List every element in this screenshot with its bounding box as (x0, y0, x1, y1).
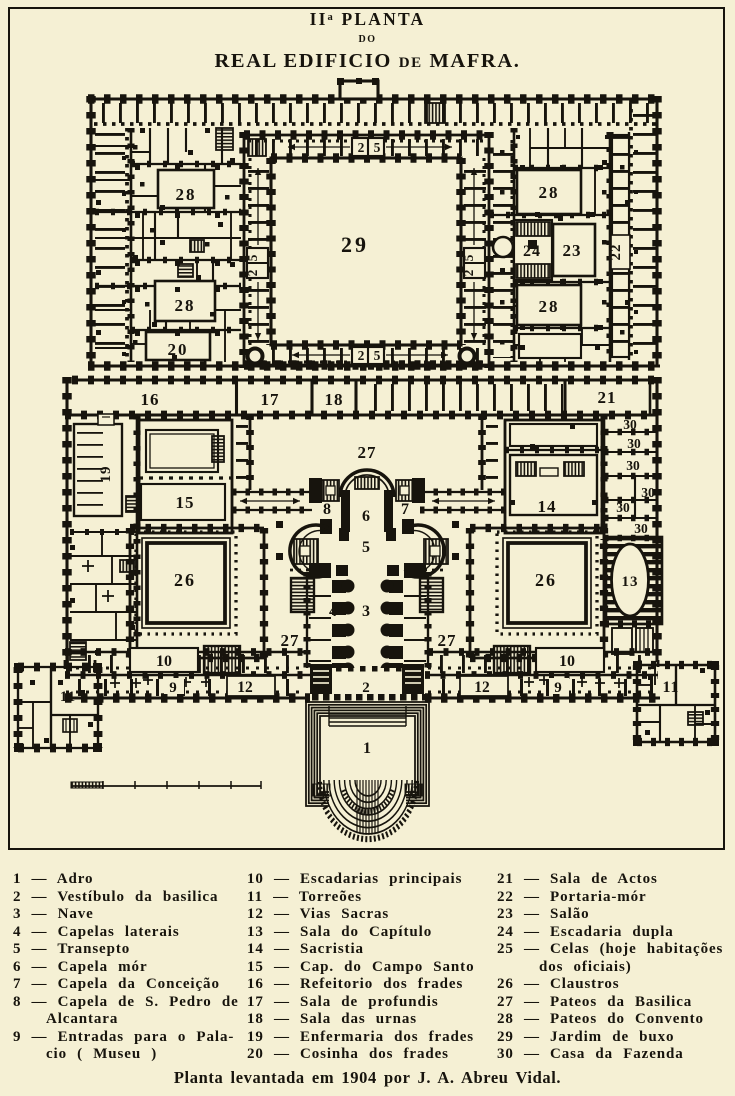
svg-text:30: 30 (623, 417, 637, 432)
svg-text:8: 8 (323, 501, 331, 518)
svg-text:1: 1 (363, 740, 371, 757)
svg-text:4: 4 (329, 603, 337, 620)
svg-text:5: 5 (374, 348, 381, 363)
svg-text:10: 10 (156, 653, 172, 670)
svg-text:27: 27 (358, 443, 377, 462)
svg-text:4: 4 (394, 602, 402, 619)
svg-text:23: 23 (563, 241, 582, 260)
svg-text:11: 11 (60, 689, 76, 705)
svg-text:24: 24 (523, 243, 541, 260)
svg-text:5: 5 (362, 539, 370, 556)
svg-text:30: 30 (626, 458, 640, 473)
svg-text:10: 10 (559, 653, 575, 670)
svg-text:30: 30 (616, 500, 630, 515)
svg-text:28: 28 (539, 183, 560, 202)
svg-text:13: 13 (622, 574, 639, 590)
svg-text:30: 30 (627, 436, 641, 451)
svg-text:26: 26 (174, 570, 196, 590)
svg-text:9: 9 (169, 680, 177, 696)
svg-text:21: 21 (598, 388, 617, 407)
svg-text:2: 2 (358, 348, 365, 363)
svg-text:3: 3 (362, 603, 370, 620)
svg-text:15: 15 (176, 493, 195, 512)
svg-text:9: 9 (554, 680, 562, 696)
svg-text:5: 5 (245, 254, 260, 261)
svg-text:29: 29 (341, 232, 369, 257)
svg-text:14: 14 (538, 497, 557, 516)
svg-text:5: 5 (461, 254, 476, 261)
svg-text:27: 27 (281, 631, 300, 650)
svg-text:2: 2 (362, 680, 370, 696)
svg-text:28: 28 (539, 297, 560, 316)
svg-text:2: 2 (358, 140, 365, 155)
svg-text:30: 30 (641, 485, 655, 500)
svg-text:18: 18 (325, 390, 344, 409)
svg-text:2: 2 (461, 269, 476, 276)
svg-text:7: 7 (401, 501, 409, 518)
svg-text:20: 20 (168, 340, 189, 359)
svg-text:2: 2 (245, 269, 260, 276)
svg-text:17: 17 (261, 390, 280, 409)
svg-text:6: 6 (362, 508, 370, 525)
svg-text:28: 28 (175, 296, 196, 315)
svg-text:5: 5 (374, 140, 381, 155)
svg-text:22: 22 (608, 244, 624, 261)
svg-text:12: 12 (237, 679, 253, 696)
svg-text:27: 27 (438, 631, 457, 650)
svg-text:28: 28 (176, 185, 197, 204)
svg-text:26: 26 (535, 570, 557, 590)
svg-text:16: 16 (141, 390, 160, 409)
svg-text:30: 30 (634, 521, 648, 536)
svg-text:19: 19 (98, 466, 114, 483)
svg-text:12: 12 (474, 679, 490, 696)
